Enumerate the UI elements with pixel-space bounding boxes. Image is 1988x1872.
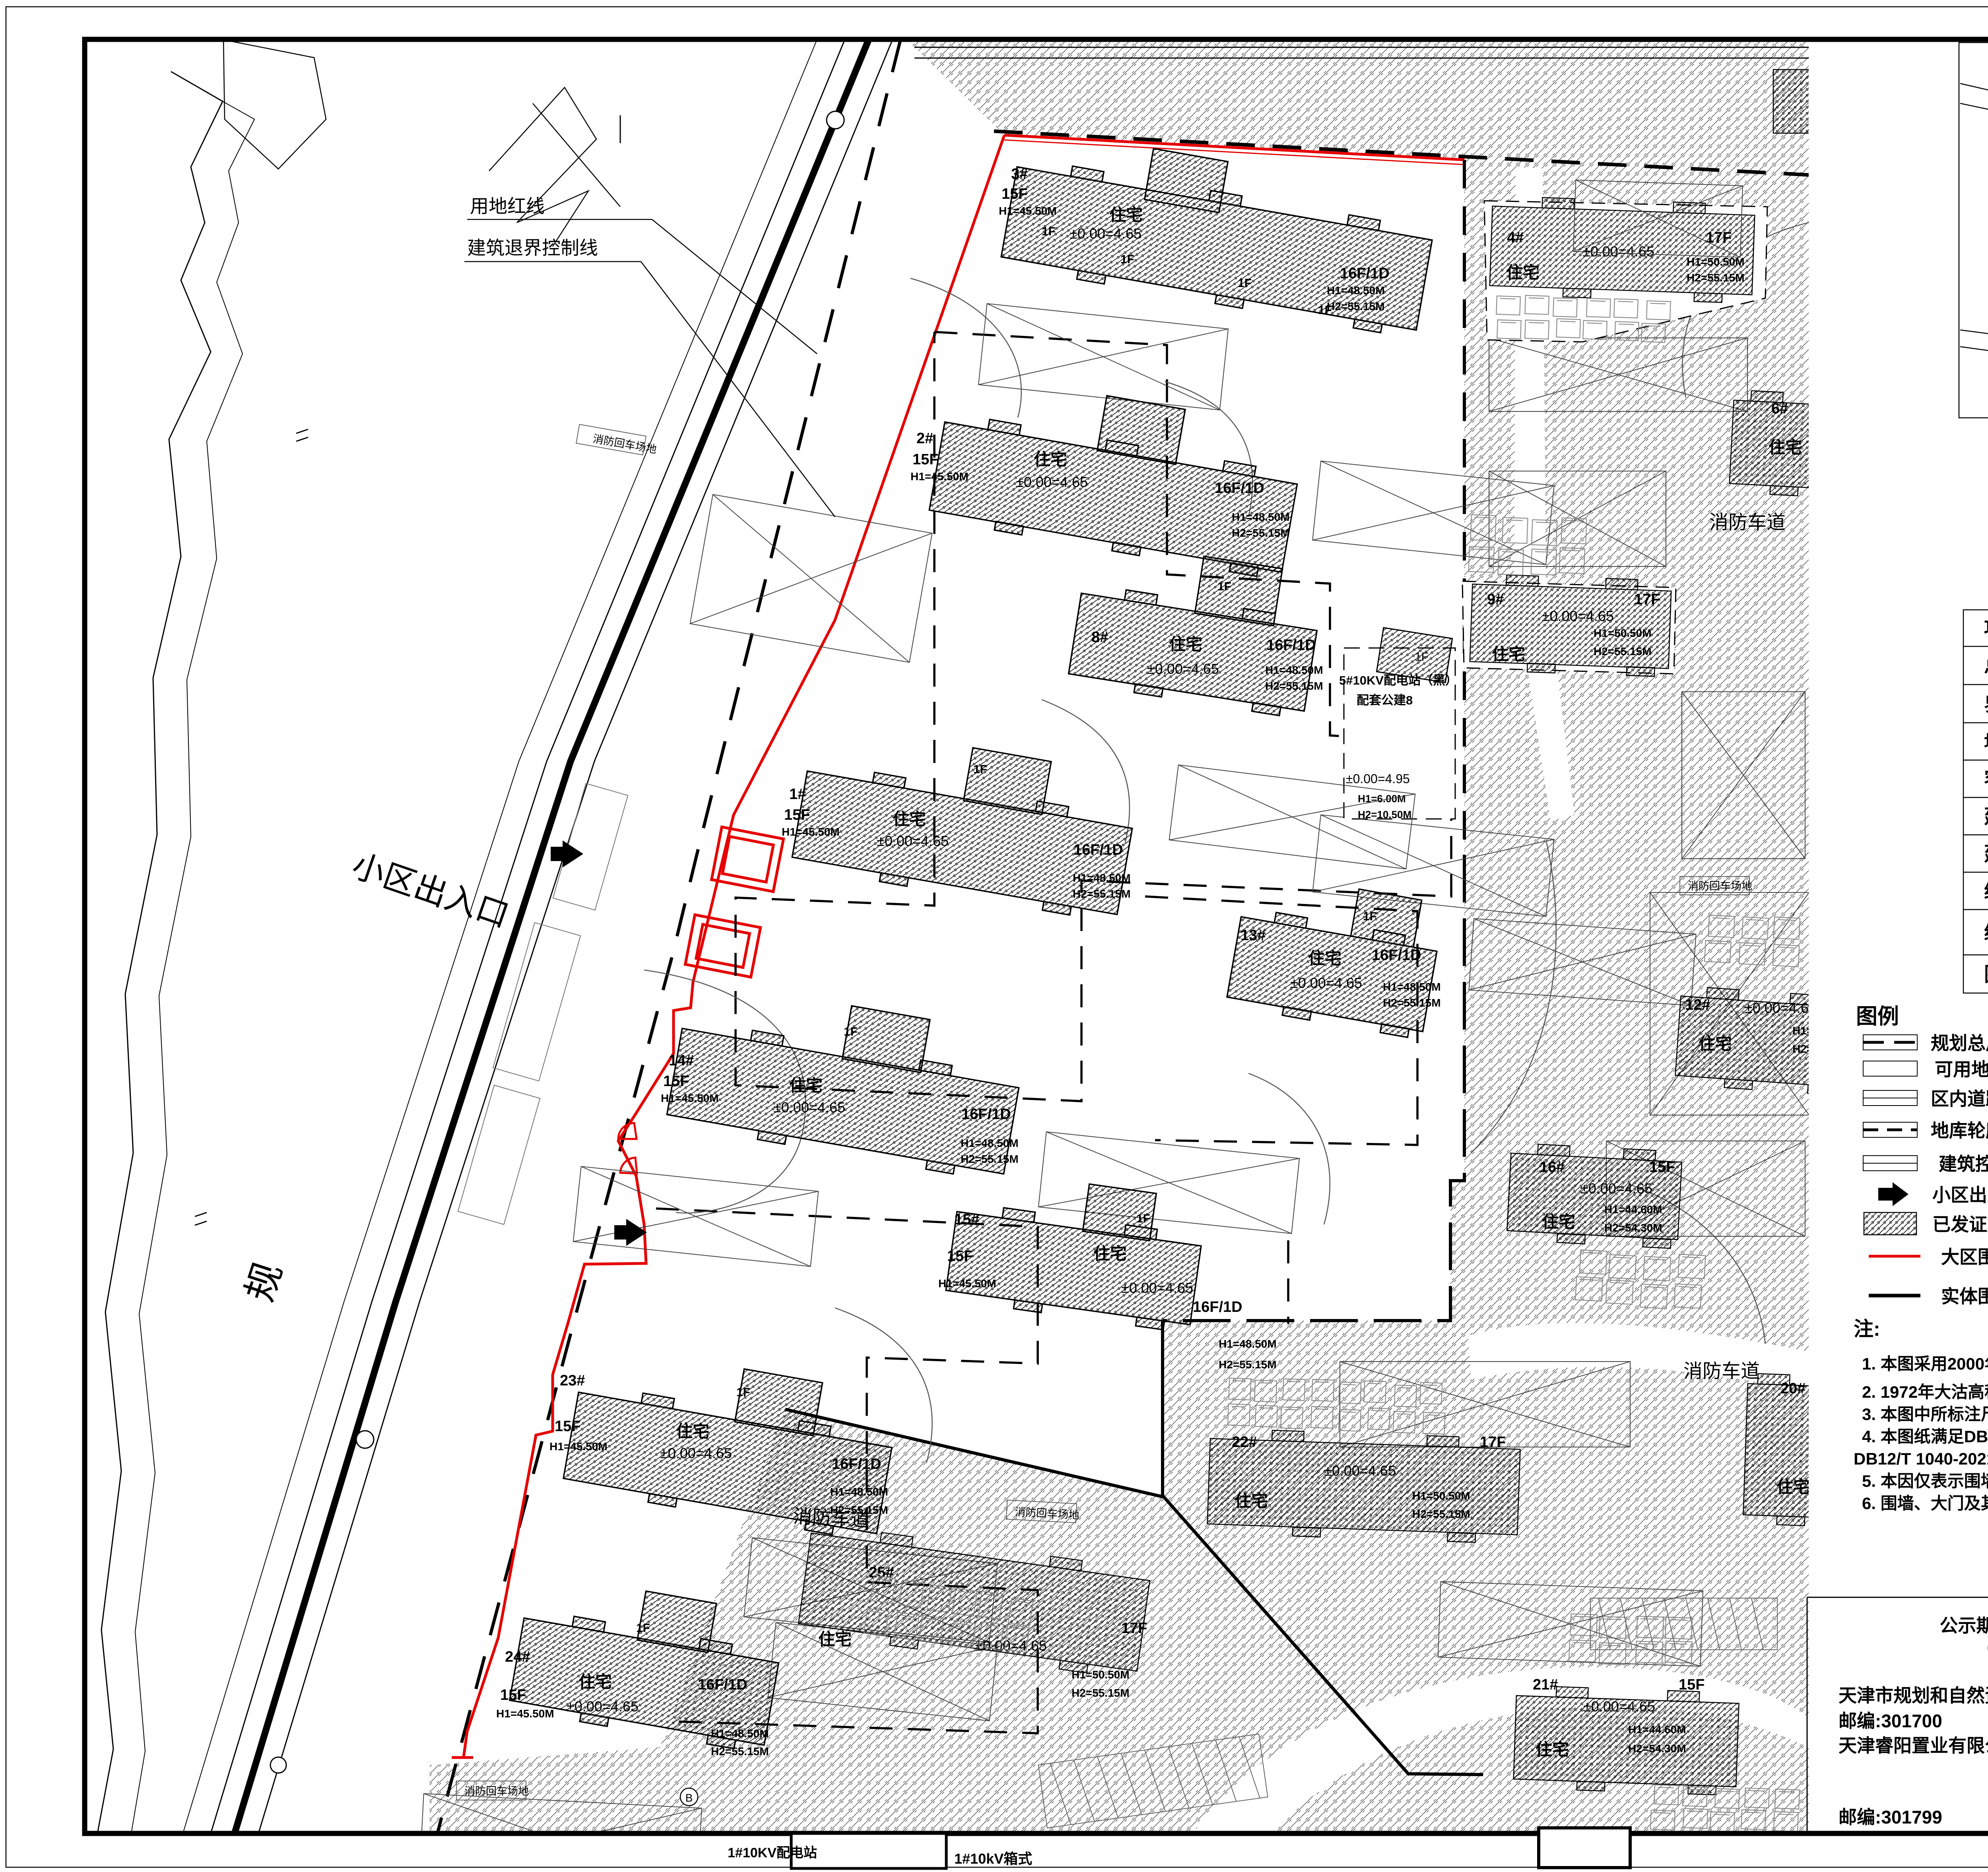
- svg-text:住宅: 住宅: [1109, 206, 1143, 224]
- svg-text:15F: 15F: [555, 1418, 580, 1435]
- svg-text:15F: 15F: [912, 451, 938, 468]
- svg-text:地库轮廓线: 地库轮廓线: [1931, 1120, 1988, 1141]
- svg-text:H2=55.15M: H2=55.15M: [1383, 997, 1441, 1009]
- svg-text:H2=55.15M: H2=55.15M: [1327, 300, 1385, 312]
- svg-text:1F: 1F: [1217, 580, 1231, 593]
- svg-text:20#: 20#: [1780, 1380, 1806, 1397]
- svg-text:17F: 17F: [1634, 591, 1660, 608]
- svg-text:9#: 9#: [1487, 591, 1504, 608]
- svg-text:1#10KV配电站: 1#10KV配电站: [728, 1845, 817, 1860]
- svg-text:天津市规划和自然资源局武清分局: 天津市规划和自然资源局武清分局: [1839, 1685, 1988, 1706]
- svg-text:H1=48.50M: H1=48.50M: [1073, 872, 1131, 884]
- svg-text:16F/1D: 16F/1D: [698, 1676, 747, 1693]
- svg-text:±0.00=4.65: ±0.00=4.65: [1583, 1698, 1655, 1715]
- svg-text:±0.00=4.65: ±0.00=4.65: [1147, 661, 1219, 677]
- svg-text:H1=45.50M: H1=45.50M: [661, 1092, 719, 1104]
- svg-text:H2=55.15M: H2=55.15M: [1232, 527, 1290, 539]
- svg-text:±0.00=4.65: ±0.00=4.65: [1290, 975, 1362, 991]
- svg-text:建筑退界控制线: 建筑退界控制线: [467, 237, 598, 258]
- svg-text:1#10kV箱式: 1#10kV箱式: [954, 1851, 1032, 1867]
- svg-text:6#: 6#: [1771, 400, 1788, 417]
- svg-text:±0.00=4.65: ±0.00=4.65: [1121, 1280, 1193, 1296]
- svg-text:1F: 1F: [636, 1622, 650, 1635]
- svg-text:消防车道: 消防车道: [1709, 512, 1786, 533]
- svg-text:1F: 1F: [1318, 304, 1332, 317]
- svg-text:H1=48.50M: H1=48.50M: [830, 1486, 888, 1498]
- svg-text:用地红线: 用地红线: [470, 196, 545, 217]
- svg-text:4#: 4#: [1507, 229, 1524, 246]
- svg-text:16F/1D: 16F/1D: [1372, 947, 1421, 964]
- svg-text:12#: 12#: [1685, 997, 1710, 1013]
- svg-text:H2=55.15M: H2=55.15M: [830, 1504, 888, 1516]
- svg-text:住宅: 住宅: [1769, 438, 1802, 457]
- svg-text:DB12/T 1040-2021《建筑工程现划管理技术规范》: DB12/T 1040-2021《建筑工程现划管理技术规范》等规范要求。: [1854, 1449, 1988, 1468]
- svg-text:邮编:301700: 邮编:301700: [1839, 1711, 1942, 1731]
- svg-text:H1=45.50M: H1=45.50M: [911, 470, 969, 483]
- svg-text:3#: 3#: [1011, 166, 1028, 182]
- svg-text:住宅: 住宅: [1536, 1740, 1569, 1759]
- svg-text:项目: 项目: [1984, 617, 1988, 640]
- svg-text:1. 本图采用2000年天津城市坐标系。: 1. 本图采用2000年天津城市坐标系。: [1862, 1354, 1988, 1373]
- svg-text:14#: 14#: [669, 1052, 694, 1069]
- svg-text:B: B: [685, 1792, 693, 1804]
- svg-text:H2=55.15M: H2=55.15M: [1687, 272, 1745, 284]
- svg-text:注:: 注:: [1854, 1318, 1880, 1340]
- svg-text:15F: 15F: [1002, 186, 1027, 202]
- svg-text:23#: 23#: [560, 1372, 585, 1389]
- svg-text:H1=50.50M: H1=50.50M: [1594, 627, 1652, 639]
- svg-text:配套公建8: 配套公建8: [1357, 693, 1413, 707]
- svg-text:H1=48.50M: H1=48.50M: [1327, 284, 1385, 297]
- svg-text:H1=50.50M: H1=50.50M: [1072, 1668, 1130, 1681]
- svg-text:16F/1D: 16F/1D: [1340, 265, 1390, 282]
- svg-text:住宅: 住宅: [1699, 1034, 1732, 1053]
- svg-text:±0.00=4.65: ±0.00=4.65: [1542, 608, 1614, 624]
- svg-text:1F: 1F: [1120, 253, 1134, 266]
- svg-text:H2=55.15M: H2=55.15M: [711, 1745, 769, 1758]
- svg-text:15F: 15F: [784, 807, 810, 823]
- svg-text:16F/1D: 16F/1D: [1215, 480, 1264, 497]
- svg-text:住宅: 住宅: [579, 1672, 612, 1691]
- svg-text:±0.00=4.65: ±0.00=4.65: [1324, 1463, 1396, 1479]
- svg-text:13#: 13#: [1241, 927, 1266, 944]
- svg-text:1F: 1F: [1363, 910, 1377, 923]
- svg-text:H1=44.60M: H1=44.60M: [1604, 1203, 1662, 1216]
- svg-text:消防回车场地: 消防回车场地: [464, 1785, 529, 1797]
- svg-text:1F: 1F: [1042, 225, 1056, 238]
- svg-text:±0.00=4.95: ±0.00=4.95: [1346, 772, 1410, 786]
- svg-text:（公示期间未反馈视为无异议）: （公示期间未反馈视为无异议）: [1975, 1638, 1988, 1659]
- svg-text:H2=55.15M: H2=55.15M: [1265, 680, 1323, 692]
- svg-text:小区出入口: 小区出入口: [1932, 1185, 1988, 1205]
- svg-text:可用地界线: 可用地界线: [1935, 1059, 1988, 1080]
- svg-text:绿地率: 绿地率: [1984, 880, 1988, 902]
- svg-text:住宅: 住宅: [1492, 645, 1525, 663]
- svg-text:15F: 15F: [663, 1073, 689, 1090]
- svg-text:17F: 17F: [1480, 1434, 1506, 1451]
- svg-text:住宅: 住宅: [1542, 1212, 1575, 1231]
- svg-text:16F/1D: 16F/1D: [832, 1456, 881, 1472]
- svg-text:1F: 1F: [736, 1386, 750, 1399]
- svg-text:H1=48.50M: H1=48.50M: [1265, 664, 1323, 676]
- svg-text:15#: 15#: [954, 1211, 979, 1228]
- svg-text:±0.00=4.65: ±0.00=4.65: [877, 833, 949, 849]
- svg-text:±0.00=4.65: ±0.00=4.65: [773, 1099, 845, 1115]
- svg-text:4. 本图纸满足DB12/T990-2020《建筑类建设工程: 4. 本图纸满足DB12/T990-2020《建筑类建设工程规划许可证设计方案视…: [1862, 1427, 1988, 1446]
- svg-text:±0.00=4.65: ±0.00=4.65: [1745, 1000, 1817, 1016]
- svg-text:±0.00=4.65: ±0.00=4.65: [1582, 243, 1654, 260]
- svg-text:H1=48.50M: H1=48.50M: [961, 1137, 1019, 1149]
- svg-text:25#: 25#: [869, 1564, 894, 1581]
- svg-text:住宅: 住宅: [1235, 1492, 1268, 1510]
- svg-text:16F/1D: 16F/1D: [1193, 1299, 1242, 1315]
- svg-text:H1=45.50M: H1=45.50M: [782, 826, 840, 838]
- svg-text:H2=55.15M: H2=55.15M: [1073, 888, 1131, 900]
- svg-text:H2=55.15M: H2=55.15M: [1594, 645, 1652, 658]
- svg-text:公示期为:2025年6月24日-2025年7月2日: 公示期为:2025年6月24日-2025年7月2日: [1939, 1615, 1988, 1636]
- svg-text:住宅: 住宅: [1506, 263, 1540, 282]
- svg-text:±0.00=4.65: ±0.00=4.65: [1016, 474, 1088, 490]
- svg-text:H1=45.50M: H1=45.50M: [999, 205, 1057, 217]
- svg-text:建筑基地面积: 建筑基地面积: [1984, 843, 1988, 865]
- svg-text:H1=48.50M: H1=48.50M: [1232, 511, 1290, 523]
- svg-text:住宅: 住宅: [818, 1630, 852, 1649]
- svg-text:已发证建筑: 已发证建筑: [1932, 1214, 1988, 1235]
- svg-text:H2=55.15M: H2=55.15M: [1072, 1687, 1130, 1699]
- svg-text:22#: 22#: [1232, 1434, 1257, 1451]
- svg-text:H1=45.50M: H1=45.50M: [938, 1277, 996, 1290]
- svg-text:总用地面积: 总用地面积: [1984, 655, 1988, 677]
- svg-text:绿地面积: 绿地面积: [1984, 921, 1988, 944]
- svg-text:16F/1D: 16F/1D: [961, 1106, 1011, 1123]
- svg-text:24#: 24#: [505, 1649, 530, 1665]
- svg-text:1F: 1F: [1415, 650, 1429, 663]
- svg-text:1F: 1F: [1136, 1212, 1150, 1225]
- svg-text:6. 围墙、大门及其基础设备均在现划可用地界线内。: 6. 围墙、大门及其基础设备均在现划可用地界线内。: [1862, 1494, 1988, 1513]
- svg-text:H1=50.50M: H1=50.50M: [1412, 1490, 1470, 1502]
- svg-text:H2=54.30M: H2=54.30M: [1604, 1222, 1662, 1234]
- svg-text:消防回车场地: 消防回车场地: [1688, 880, 1752, 892]
- svg-text:H2=54.30M: H2=54.30M: [1628, 1742, 1686, 1755]
- svg-text:5. 本因仅表示围墙及大门内容，其他因纸内容及指标以审批工规: 5. 本因仅表示围墙及大门内容，其他因纸内容及指标以审批工规证及附图信息为准。: [1862, 1472, 1988, 1490]
- svg-text:2#: 2#: [916, 430, 933, 447]
- svg-text:15F: 15F: [947, 1248, 973, 1265]
- svg-text:5#10KV配电站（黑）: 5#10KV配电站（黑）: [1339, 673, 1458, 687]
- svg-text:实体围墙: 实体围墙: [1941, 1286, 1988, 1307]
- svg-text:消防车道: 消防车道: [1683, 1361, 1760, 1382]
- svg-text:2. 1972年大沽高程系（2015年高程）。: 2. 1972年大沽高程系（2015年高程）。: [1862, 1383, 1988, 1401]
- svg-text:区内道路: 区内道路: [1931, 1088, 1988, 1109]
- svg-text:16F/1D: 16F/1D: [1074, 842, 1123, 858]
- svg-text:H2=55.15M: H2=55.15M: [1219, 1358, 1277, 1371]
- svg-text:1F: 1F: [973, 763, 987, 776]
- svg-text:H2=55.15M: H2=55.15M: [1412, 1508, 1470, 1520]
- svg-text:3. 本图中所标注尺寸、标高均以米为单位。: 3. 本图中所标注尺寸、标高均以米为单位。: [1862, 1405, 1988, 1424]
- svg-text:规划总用地界线: 规划总用地界线: [1931, 1033, 1988, 1053]
- svg-text:±0.00=4.65: ±0.00=4.65: [975, 1637, 1047, 1654]
- svg-text:建筑控制线: 建筑控制线: [1939, 1154, 1988, 1174]
- svg-text:住宅: 住宅: [676, 1422, 709, 1441]
- svg-text:1F: 1F: [1238, 277, 1252, 290]
- svg-text:H1=45.50M: H1=45.50M: [496, 1707, 554, 1720]
- svg-text:容积率: 容积率: [1984, 768, 1988, 790]
- svg-text:16#: 16#: [1540, 1159, 1565, 1176]
- svg-text:H1=48.50M: H1=48.50M: [1383, 981, 1441, 993]
- svg-text:15F: 15F: [500, 1687, 526, 1703]
- svg-text:8#: 8#: [1091, 629, 1108, 646]
- svg-text:15F: 15F: [1679, 1676, 1705, 1693]
- svg-text:界内建设用地面积: 界内建设用地面积: [1984, 694, 1988, 715]
- svg-text:H1=45.50M: H1=45.50M: [549, 1440, 608, 1453]
- svg-text:16F/1D: 16F/1D: [1266, 637, 1316, 654]
- svg-text:住宅: 住宅: [1034, 450, 1067, 469]
- svg-text:大区围墙: 大区围墙: [1941, 1247, 1988, 1267]
- svg-text:±0.00=4.65: ±0.00=4.65: [1070, 225, 1142, 242]
- svg-text:地上计容建筑面积: 地上计容建筑面积: [1984, 732, 1988, 753]
- svg-text:住宅: 住宅: [893, 810, 926, 828]
- svg-text:住宅: 住宅: [1776, 1478, 1810, 1496]
- svg-text:H2=55.15M: H2=55.15M: [961, 1153, 1019, 1165]
- svg-text:H1=48.50M: H1=48.50M: [1219, 1338, 1277, 1350]
- svg-text:H2=10.50M: H2=10.50M: [1358, 809, 1411, 821]
- svg-text:邮编:301799: 邮编:301799: [1839, 1807, 1942, 1827]
- svg-text:住宅: 住宅: [1308, 949, 1342, 968]
- svg-text:1#: 1#: [789, 786, 806, 803]
- svg-text:围墙: 围墙: [1984, 963, 1988, 985]
- svg-text:21#: 21#: [1533, 1676, 1558, 1693]
- svg-text:住宅: 住宅: [789, 1076, 823, 1095]
- svg-text:H1=48.50M: H1=48.50M: [711, 1727, 769, 1740]
- svg-text:H1=6.00M: H1=6.00M: [1358, 793, 1406, 805]
- svg-text:±0.00=4.65: ±0.00=4.65: [660, 1445, 732, 1461]
- svg-text:1F: 1F: [844, 1025, 858, 1038]
- svg-text:天津睿阳置业有限公司: 天津睿阳置业有限公司: [1839, 1735, 1988, 1756]
- svg-text:15F: 15F: [1649, 1159, 1675, 1176]
- svg-text:17F: 17F: [1706, 229, 1732, 246]
- svg-text:建筑密度: 建筑密度: [1984, 805, 1988, 828]
- svg-text:17F: 17F: [1121, 1620, 1147, 1637]
- svg-text:住宅: 住宅: [1169, 635, 1202, 654]
- svg-text:H1=44.60M: H1=44.60M: [1628, 1723, 1686, 1736]
- svg-text:±0.00=4.65: ±0.00=4.65: [567, 1698, 639, 1715]
- svg-text:住宅: 住宅: [1093, 1244, 1127, 1263]
- svg-text:±0.00=4.65: ±0.00=4.65: [1580, 1180, 1652, 1197]
- svg-text:图例: 图例: [1856, 1005, 1899, 1028]
